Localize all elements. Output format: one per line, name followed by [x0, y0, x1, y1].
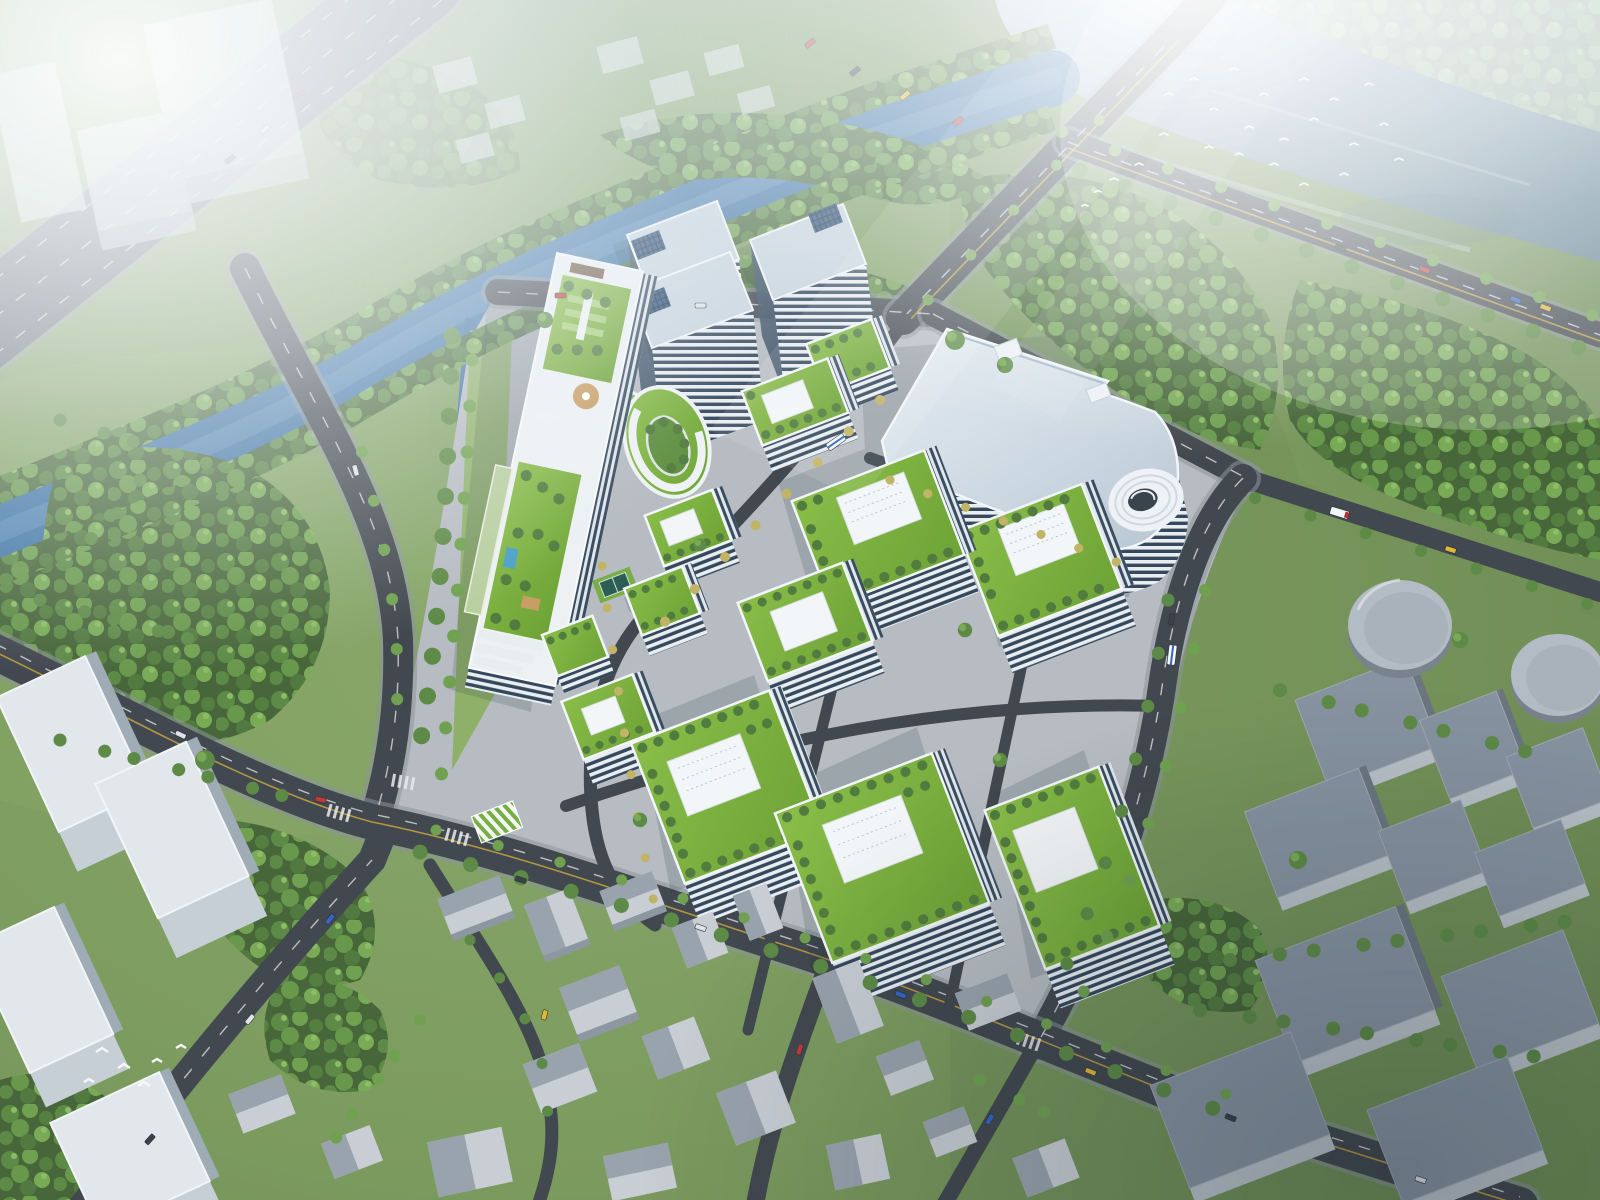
tree — [633, 813, 647, 827]
tree — [1452, 632, 1468, 648]
storage-tank — [1348, 580, 1452, 678]
tree — [958, 623, 972, 637]
tree — [694, 539, 707, 552]
tree — [195, 750, 215, 770]
render-canvas — [0, 0, 1600, 1200]
aerial-render — [0, 0, 1600, 1200]
